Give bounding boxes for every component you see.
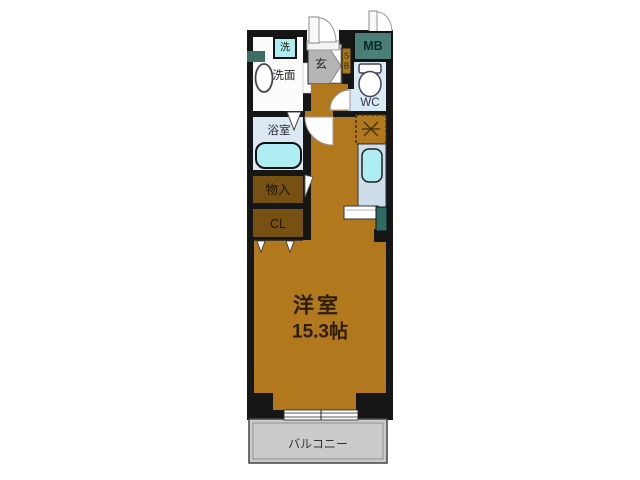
kitchen-counter-lower [344,206,378,219]
main-room-size-label: 15.3帖 [292,320,348,343]
main-room-label: 洋室 [293,294,341,318]
kitchen-sink [362,149,382,182]
storage-label: 物入 [265,183,291,197]
floorplan-page: 洗 洗面 玄 S B MB WC 浴室 物入 CL 洋室 15.3帖 バルコニー [0,0,640,480]
wall-corner-bottom-left [247,393,273,420]
floorplan-drawing: 洗 洗面 玄 S B MB WC 浴室 物入 CL 洋室 15.3帖 バルコニー [0,0,640,480]
stove [376,207,387,231]
laundry-label: 洗 [280,42,290,54]
entrance-door-leaf [309,17,319,43]
toilet-icon [359,64,381,97]
bathtub-icon [256,143,301,168]
entrance-label: 玄 [315,56,327,71]
closet-label: CL [270,217,286,231]
wall-corner-bottom-right [356,393,393,420]
meter-box-door-leaf [369,11,377,32]
bathroom-label: 浴室 [268,123,291,137]
washbasin-icon [256,64,273,92]
wc-label: WC [360,97,379,109]
washstand-label: 洗面 [273,69,296,82]
window-small [247,51,265,62]
balcony-label: バルコニー [288,437,348,451]
toilet-bowl [359,72,381,97]
shoebox-label-top: S [344,52,349,61]
meter-box-label: MB [363,39,382,53]
shoebox-label-bottom: B [344,62,349,71]
